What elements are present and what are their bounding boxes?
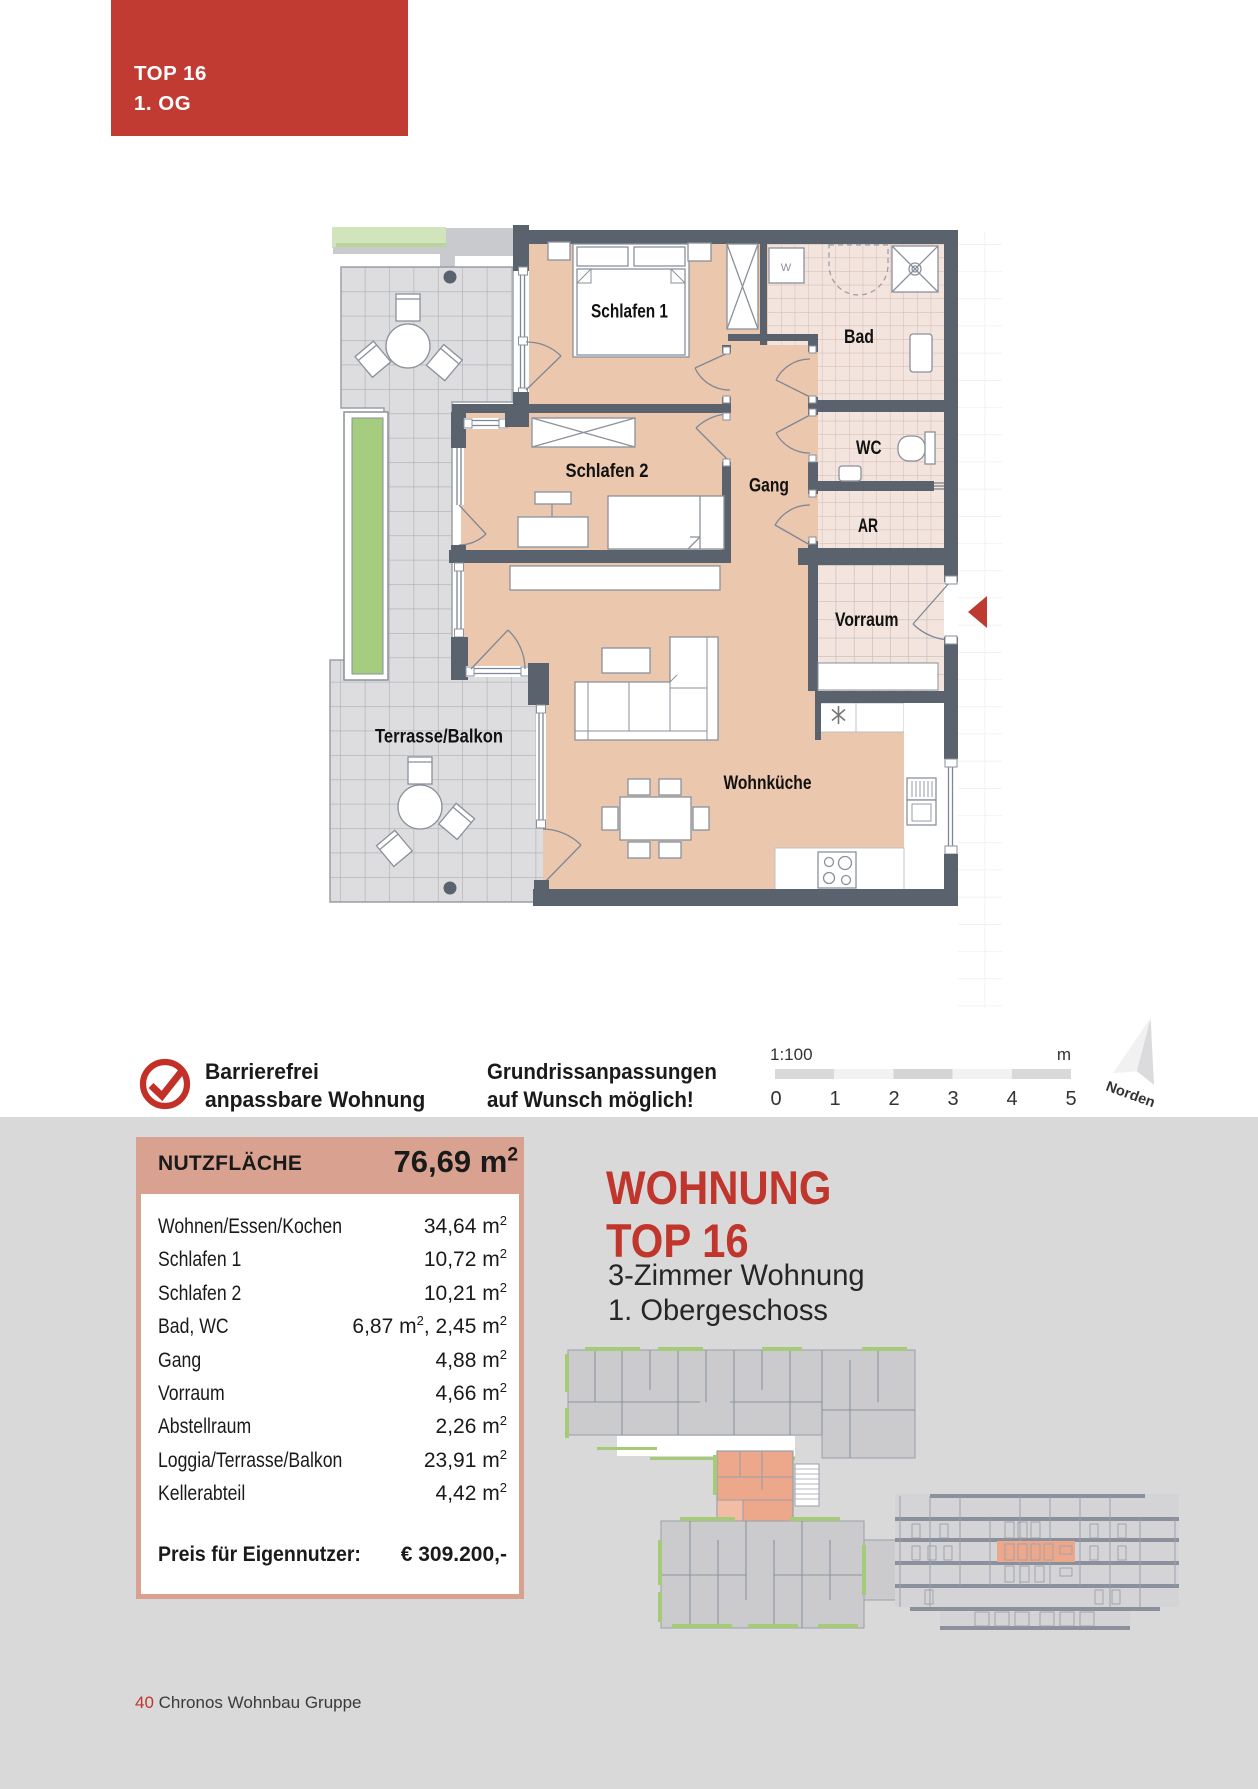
svg-text:m: m <box>1057 1045 1071 1064</box>
svg-text:Norden: Norden <box>1104 1079 1157 1111</box>
svg-text:Bad: Bad <box>844 326 874 348</box>
svg-text:Wohnküche: Wohnküche <box>724 772 812 794</box>
svg-text:AR: AR <box>858 515 878 537</box>
svg-text:2: 2 <box>888 1088 899 1110</box>
svg-text:1: 1 <box>829 1088 840 1110</box>
svg-text:1:100: 1:100 <box>770 1045 813 1064</box>
svg-text:Vorraum: Vorraum <box>835 609 899 631</box>
svg-text:Schlafen 2: Schlafen 2 <box>566 460 649 482</box>
svg-text:0: 0 <box>770 1088 781 1110</box>
svg-text:3: 3 <box>947 1088 958 1110</box>
svg-text:5: 5 <box>1065 1088 1076 1110</box>
svg-text:Gang: Gang <box>749 475 789 497</box>
svg-text:Terrasse/Balkon: Terrasse/Balkon <box>375 726 503 748</box>
svg-text:WC: WC <box>856 437 882 459</box>
svg-text:4: 4 <box>1006 1088 1017 1110</box>
svg-text:W: W <box>781 262 792 274</box>
svg-text:Schlafen 1: Schlafen 1 <box>591 301 668 323</box>
